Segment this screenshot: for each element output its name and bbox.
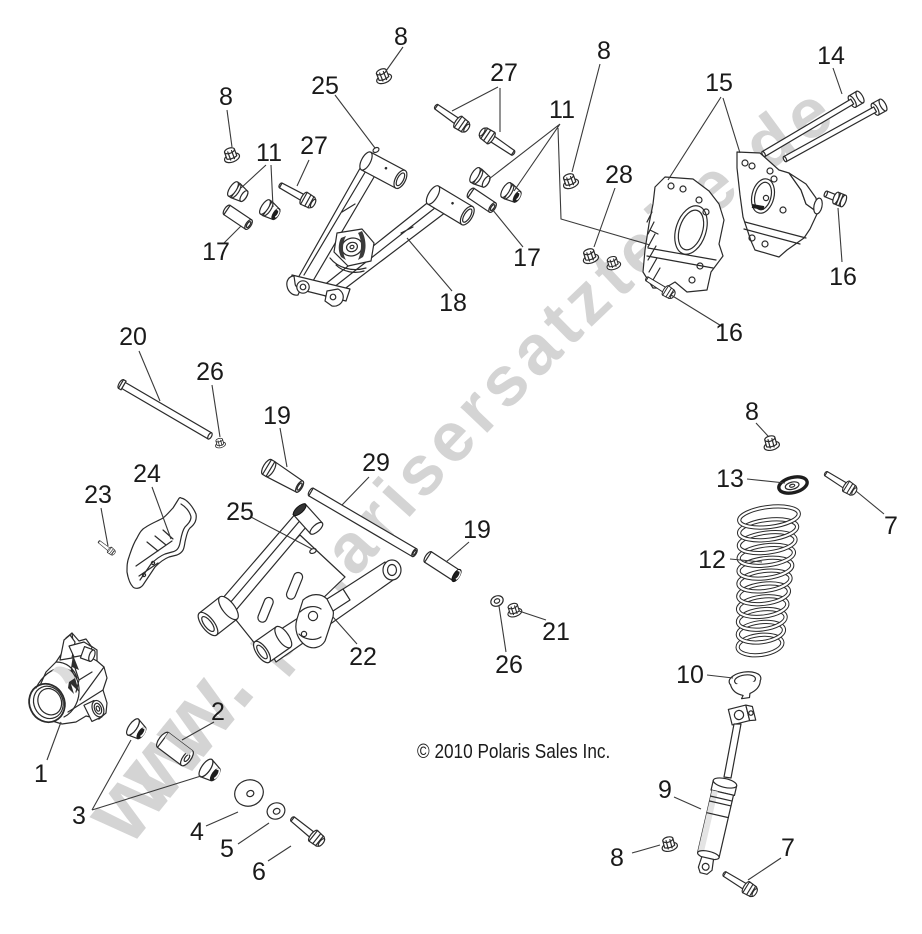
- svg-text:27: 27: [300, 132, 328, 160]
- svg-text:27: 27: [490, 59, 518, 87]
- svg-text:16: 16: [715, 319, 743, 347]
- svg-text:12: 12: [698, 546, 726, 574]
- svg-text:13: 13: [716, 465, 744, 493]
- svg-text:23: 23: [84, 481, 112, 509]
- svg-text:7: 7: [781, 834, 795, 862]
- svg-text:29: 29: [362, 449, 390, 477]
- svg-text:19: 19: [263, 402, 291, 430]
- svg-text:21: 21: [542, 618, 570, 646]
- svg-text:8: 8: [745, 398, 759, 426]
- svg-text:16: 16: [829, 263, 857, 291]
- svg-text:15: 15: [705, 69, 733, 97]
- svg-text:25: 25: [311, 72, 339, 100]
- svg-text:8: 8: [219, 83, 233, 111]
- svg-text:1: 1: [34, 760, 48, 788]
- svg-text:22: 22: [349, 643, 377, 671]
- svg-text:24: 24: [133, 460, 161, 488]
- svg-text:18: 18: [439, 289, 467, 317]
- svg-text:5: 5: [220, 835, 234, 863]
- svg-text:10: 10: [676, 661, 704, 689]
- svg-text:2: 2: [211, 698, 225, 726]
- svg-text:8: 8: [597, 37, 611, 65]
- svg-text:9: 9: [658, 776, 672, 804]
- svg-text:8: 8: [394, 23, 408, 51]
- svg-text:28: 28: [605, 161, 633, 189]
- svg-text:20: 20: [119, 323, 147, 351]
- svg-text:3: 3: [72, 802, 86, 830]
- svg-text:6: 6: [252, 858, 266, 886]
- svg-text:26: 26: [495, 651, 523, 679]
- svg-text:8: 8: [610, 844, 624, 872]
- svg-text:14: 14: [817, 42, 845, 70]
- svg-text:4: 4: [190, 818, 204, 846]
- svg-text:11: 11: [549, 96, 575, 124]
- svg-text:17: 17: [513, 244, 541, 272]
- svg-text:25: 25: [226, 498, 254, 526]
- svg-text:7: 7: [884, 512, 898, 540]
- svg-text:19: 19: [463, 516, 491, 544]
- svg-text:11: 11: [256, 139, 282, 167]
- svg-text:© 2010 Polaris Sales Inc.: © 2010 Polaris Sales Inc.: [417, 740, 610, 763]
- svg-text:26: 26: [196, 358, 224, 386]
- svg-text:17: 17: [202, 238, 230, 266]
